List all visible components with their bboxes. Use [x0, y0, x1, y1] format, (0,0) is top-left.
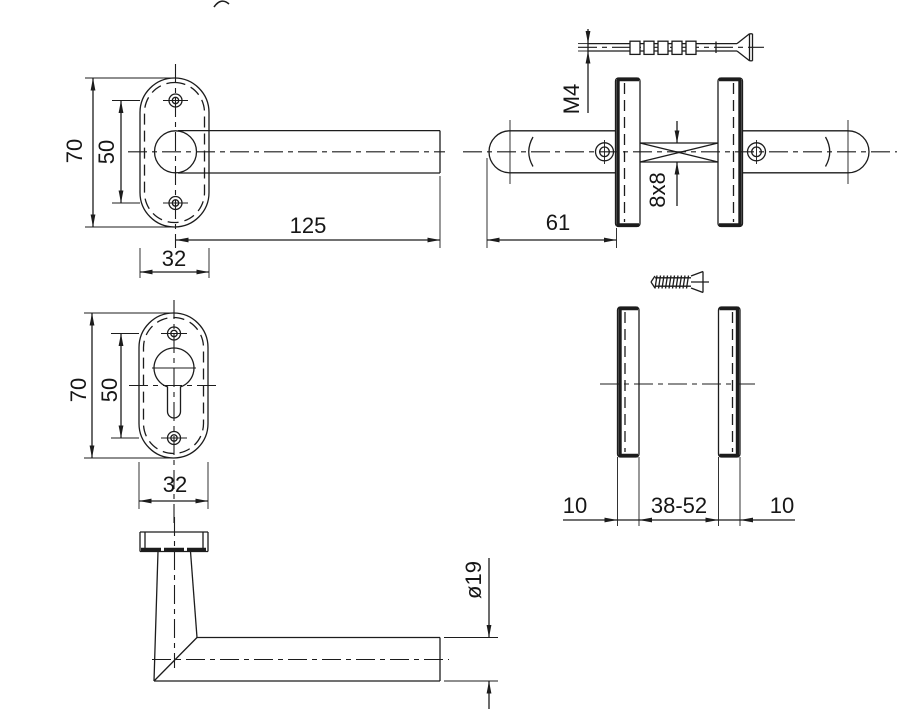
side-view-assembly [463, 29, 897, 248]
dim-label-front-handle-length: 125 [290, 215, 327, 237]
technical-drawing-sheet: 70 50 125 32 M4 8x8 61 70 50 32 10 38-52… [0, 0, 899, 715]
side-view-roses [563, 272, 795, 527]
profile-view-handle [140, 517, 498, 709]
dim-label-door-range: 38-52 [651, 495, 707, 517]
dim-label-front-handle-holes: 50 [96, 140, 118, 164]
front-view-handle [85, 64, 445, 278]
dim-label-rose-thickness-left: 10 [563, 495, 587, 517]
machine-screw-m4 [578, 34, 764, 61]
dim-label-front-handle-width: 32 [162, 248, 186, 270]
dim-8x8-lines [675, 121, 680, 206]
scan-artifact [214, 1, 229, 7]
dim-label-rose-thickness-right: 10 [770, 495, 794, 517]
dim-label-front-handle-height: 70 [64, 139, 86, 163]
dim-label-cyl-rose-height: 70 [68, 378, 90, 402]
dim-label-spindle: 8x8 [647, 172, 669, 207]
dim-label-cyl-rose-holes: 50 [99, 378, 121, 402]
dim-label-grip-diameter: ø19 [463, 561, 485, 599]
drawing-geometry [0, 0, 899, 715]
spindle-8x8 [640, 143, 718, 162]
right-rose-side [719, 307, 741, 457]
handle-neck-and-grip [154, 552, 440, 682]
dim-label-projection: 61 [546, 212, 570, 234]
right-rose-side [718, 78, 743, 227]
front-view-cylinder-rose [84, 300, 219, 524]
wood-screw [651, 272, 709, 293]
left-rose-side [618, 307, 640, 457]
dim-label-cyl-rose-width: 32 [163, 474, 187, 496]
dim-label-screw-thread: M4 [561, 84, 583, 115]
